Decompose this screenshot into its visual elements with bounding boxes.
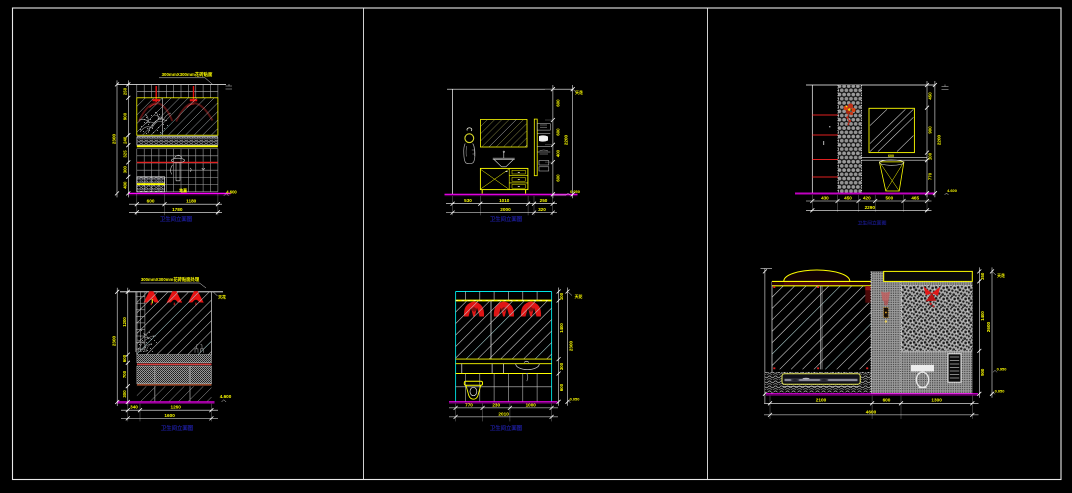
svg-text:340: 340 [130, 405, 138, 410]
svg-text:2200: 2200 [937, 134, 942, 145]
svg-text:300: 300 [559, 362, 564, 370]
svg-text:2600: 2600 [986, 321, 991, 332]
svg-text:240: 240 [123, 136, 128, 144]
svg-text:2010: 2010 [498, 411, 509, 416]
svg-text:2300: 2300 [112, 335, 117, 346]
svg-text:1300: 1300 [931, 398, 942, 403]
svg-text:300mmX300mm花砖贴面处理: 300mmX300mm花砖贴面处理 [141, 276, 200, 283]
svg-text:770: 770 [928, 172, 933, 180]
svg-text:430: 430 [821, 195, 829, 200]
svg-text:1780: 1780 [172, 207, 183, 212]
svg-text:卫生间立面图: 卫生间立面图 [490, 424, 523, 432]
svg-text:100: 100 [928, 152, 933, 160]
svg-text:450: 450 [928, 92, 933, 100]
svg-text:卫生间立面图: 卫生间立面图 [160, 215, 193, 223]
svg-text:卫生间立面图: 卫生间立面图 [490, 215, 523, 223]
svg-text:300: 300 [123, 166, 128, 174]
svg-text:420: 420 [863, 195, 871, 200]
svg-text:2100: 2100 [816, 398, 827, 403]
svg-text:400: 400 [556, 149, 561, 157]
svg-text:100: 100 [559, 292, 564, 300]
svg-text:230: 230 [492, 402, 500, 407]
svg-text:300: 300 [122, 390, 127, 398]
svg-text:天花: 天花 [575, 90, 583, 95]
svg-text:600: 600 [556, 99, 561, 107]
svg-text:2200: 2200 [563, 134, 568, 145]
svg-text:0.950: 0.950 [997, 366, 1007, 371]
svg-text:1180: 1180 [186, 199, 197, 204]
svg-text:320: 320 [538, 207, 546, 212]
svg-text:2300: 2300 [111, 133, 116, 144]
svg-text:600: 600 [122, 354, 127, 362]
svg-text:600: 600 [556, 174, 561, 182]
svg-text:300mmX300mm花砖贴面: 300mmX300mm花砖贴面 [162, 71, 213, 78]
svg-text:4600: 4600 [866, 409, 877, 414]
svg-text:530: 530 [464, 198, 472, 203]
svg-text:0.050: 0.050 [995, 388, 1005, 393]
svg-text:700: 700 [122, 370, 127, 378]
svg-text:4.600: 4.600 [226, 189, 237, 194]
svg-text:1200: 1200 [122, 317, 127, 327]
svg-text:465: 465 [911, 195, 919, 200]
svg-text:1260: 1260 [170, 405, 181, 410]
svg-text:770: 770 [465, 402, 473, 407]
svg-text:0.050: 0.050 [570, 396, 580, 401]
svg-text:1400: 1400 [559, 323, 564, 333]
svg-text:天花: 天花 [997, 273, 1005, 278]
svg-text:1400: 1400 [980, 311, 985, 321]
svg-text:250: 250 [123, 87, 128, 95]
svg-text:2290: 2290 [865, 205, 876, 210]
svg-text:450: 450 [844, 195, 852, 200]
svg-text:地漏: 地漏 [179, 188, 187, 193]
svg-text:4.600: 4.600 [947, 188, 957, 193]
svg-text:900: 900 [123, 112, 128, 120]
svg-text:天花: 天花 [575, 294, 583, 299]
svg-text:600: 600 [147, 199, 155, 204]
svg-text:卫生间立面图: 卫生间立面图 [161, 424, 194, 432]
svg-text:600: 600 [559, 383, 564, 391]
svg-text:600: 600 [556, 128, 561, 136]
svg-text:500: 500 [885, 195, 893, 200]
svg-text:900: 900 [928, 126, 933, 134]
svg-text:400: 400 [123, 181, 128, 189]
svg-text:1000: 1000 [526, 402, 537, 407]
svg-text:2300: 2300 [568, 340, 573, 351]
svg-text:250: 250 [540, 198, 548, 203]
svg-text:1600: 1600 [164, 413, 175, 418]
svg-text:2000: 2000 [500, 207, 511, 212]
svg-text:350: 350 [980, 272, 985, 280]
svg-text:325: 325 [123, 150, 128, 158]
svg-text:天花: 天花 [218, 294, 226, 299]
svg-text:900: 900 [980, 368, 985, 376]
svg-text:卫生间立面图: 卫生间立面图 [858, 220, 887, 227]
svg-text:0.050: 0.050 [570, 189, 580, 194]
svg-text:4.600: 4.600 [220, 394, 232, 399]
svg-text:600: 600 [883, 398, 891, 403]
svg-text:1010: 1010 [499, 198, 510, 203]
